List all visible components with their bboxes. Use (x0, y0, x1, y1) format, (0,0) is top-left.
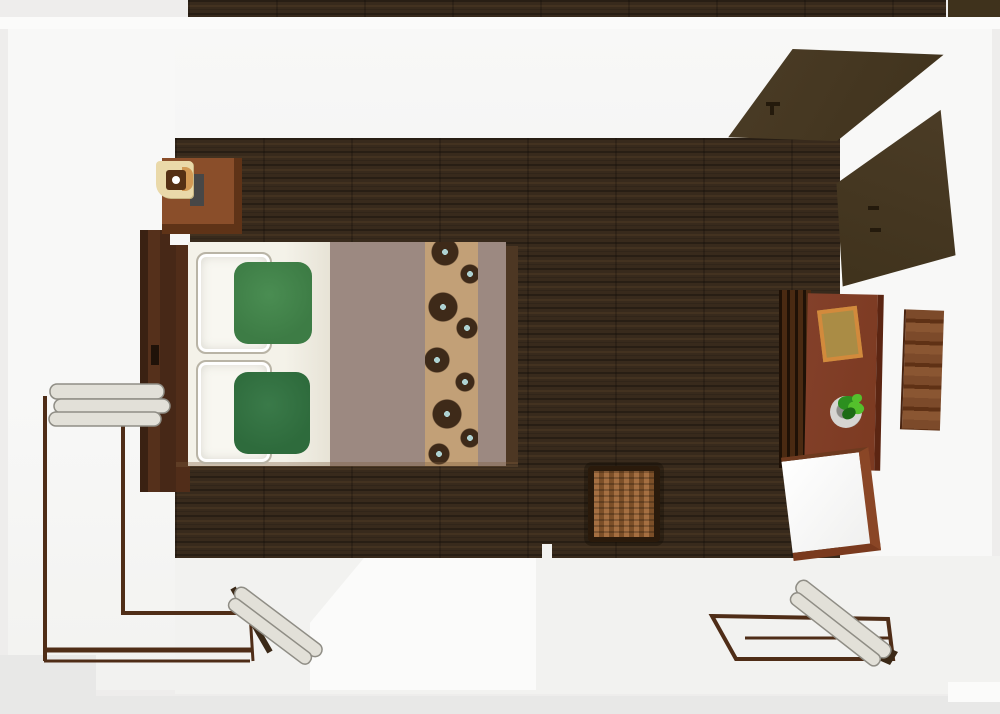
wall-art[interactable] (900, 309, 944, 430)
top-wall-band (0, 17, 1000, 29)
table-lamp[interactable] (156, 161, 193, 198)
headboard[interactable] (140, 230, 190, 492)
outer-edge-bottom (0, 696, 1000, 714)
blanket-edge (478, 242, 506, 466)
hallway-floor (188, 0, 946, 17)
bedroom-floorplan (0, 0, 1000, 714)
wall-corner-bottom-right (948, 682, 1000, 702)
basket-weave (594, 471, 654, 537)
door-handle-icon (868, 206, 879, 210)
headboard-handle (151, 345, 159, 365)
wall-bottom (175, 556, 1000, 694)
lamp-bulb-icon (172, 176, 180, 184)
lamp-ring (166, 170, 186, 190)
bed-runner-floral (425, 242, 478, 466)
pillow-green-1[interactable] (234, 262, 312, 344)
blanket (330, 242, 425, 466)
floor-gap-sliver (542, 544, 552, 558)
pillow-green-2[interactable] (234, 372, 310, 454)
outer-edge-bottom-left (0, 655, 96, 714)
desk-chair[interactable] (781, 447, 881, 561)
desk-paper[interactable] (817, 306, 863, 362)
door-handle-icon (770, 106, 774, 115)
bed-side-rail (506, 246, 518, 464)
door-handle-icon (870, 228, 881, 232)
storage-basket[interactable] (588, 466, 660, 542)
